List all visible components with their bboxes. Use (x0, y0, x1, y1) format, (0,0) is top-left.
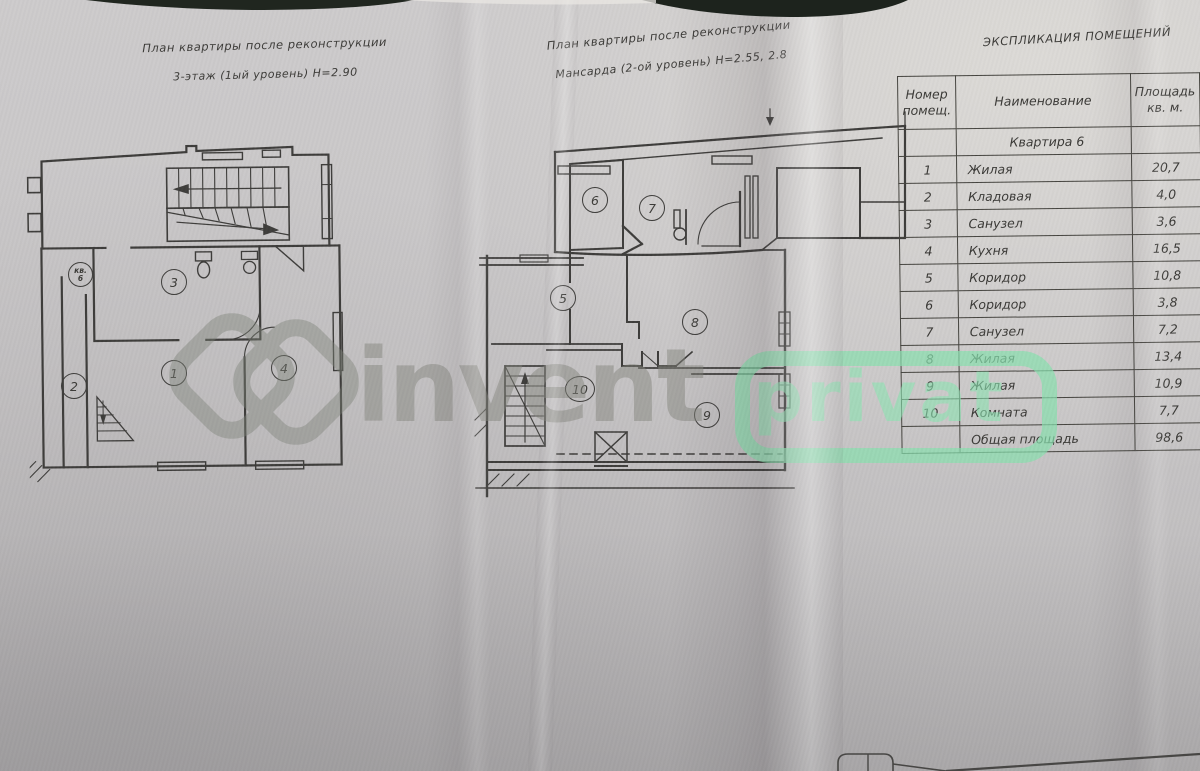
table-header-row: Номер помещ. Наименование Площадь кв. м. (898, 73, 1200, 130)
table-row: 3 Санузел 3,6 (899, 207, 1200, 238)
room-area-cell: 7,7 (1134, 396, 1200, 424)
left-plan-title-line1: План квартиры после реконструкции (100, 36, 430, 56)
empty-cell (898, 129, 956, 157)
empty-cell (1131, 126, 1200, 154)
room-name-cell: Кухня (957, 235, 1132, 264)
room-name-cell: Коридор (958, 262, 1133, 291)
left-plan-walls (26, 144, 344, 481)
left-floor-plan-drawing (26, 114, 360, 497)
room-number: 8 (691, 315, 699, 330)
header-room-name: Наименование (955, 74, 1130, 129)
left-plan-title-line2: 3-этаж (1ый уровень) Н=2.90 (100, 64, 430, 84)
explication-title: ЭКСПЛИКАЦИЯ ПОМЕЩЕНИЙ (952, 23, 1200, 51)
explication-table: Номер помещ. Наименование Площадь кв. м.… (897, 72, 1200, 454)
room-number-cell: 1 (898, 156, 956, 184)
apartment-number-badge: кв. 6 (68, 262, 93, 287)
table-row: 2 Кладовая 4,0 (899, 180, 1200, 211)
total-row: Общая площадь 98,6 (902, 423, 1200, 454)
room-circle-9: 9 (694, 402, 720, 428)
room-number: 6 (591, 193, 599, 208)
room-circle-6: 6 (582, 187, 608, 213)
room-name-cell: Коридор (958, 289, 1133, 318)
table-row: 1 Жилая 20,7 (898, 153, 1200, 184)
scanned-floorplan-page: План квартиры после реконструкции 3-этаж… (0, 0, 1200, 771)
room-number-cell: 2 (899, 183, 957, 211)
room-number-cell: 5 (900, 264, 958, 292)
apartment-group-label: Квартира 6 (956, 127, 1131, 156)
paper-shading (0, 531, 1200, 771)
room-number: 5 (559, 291, 567, 306)
toilet-icon (674, 210, 686, 240)
room-name-cell: Жилая (959, 370, 1134, 399)
sink-icon (241, 251, 257, 273)
room-number-cell: 3 (899, 210, 957, 238)
table-row: 5 Коридор 10,8 (900, 261, 1200, 292)
room-circle-8: 8 (682, 309, 708, 335)
toilet-icon (195, 252, 211, 278)
room-area-cell: 13,4 (1133, 342, 1200, 370)
room-name-cell: Жилая (958, 343, 1133, 372)
right-plan-walls (475, 109, 905, 496)
room-circle-10: 10 (565, 376, 595, 402)
corner-shelf-icon (275, 246, 303, 271)
room-name-cell: Комната (959, 397, 1134, 426)
table-row: 10 Комната 7,7 (901, 396, 1200, 427)
total-area-cell: 98,6 (1134, 423, 1200, 451)
room-circle-1: 1 (161, 360, 187, 386)
room-area-cell: 3,6 (1132, 207, 1200, 235)
room-name-cell: Санузел (957, 208, 1132, 237)
room-number-cell: 4 (899, 237, 957, 265)
room-number-cell: 8 (901, 345, 959, 373)
room-circle-3: 3 (161, 269, 187, 295)
room-number: 1 (170, 366, 178, 381)
room-number-cell: 9 (901, 372, 959, 400)
room-name-cell: Жилая (956, 154, 1131, 183)
room-area-cell: 16,5 (1132, 234, 1200, 262)
room-number: 3 (170, 275, 178, 290)
room-number: 10 (572, 382, 588, 397)
table-row: 8 Жилая 13,4 (901, 342, 1200, 373)
room-area-cell: 20,7 (1131, 153, 1200, 181)
header-room-area: Площадь кв. м. (1130, 73, 1200, 127)
room-number-cell: 10 (901, 399, 959, 427)
header-room-number: Номер помещ. (898, 76, 956, 130)
room-circle-7: 7 (639, 195, 665, 221)
room-circle-2: 2 (61, 373, 87, 399)
total-label-cell: Общая площадь (959, 424, 1134, 453)
room-name-cell: Кладовая (957, 181, 1132, 210)
shaft-icon (595, 432, 627, 466)
stairs-upper-flight (167, 167, 289, 208)
stairs-winder-icon (97, 397, 133, 441)
left-plan-title: План квартиры после реконструкции 3-этаж… (100, 36, 431, 84)
room-area-cell: 10,9 (1134, 369, 1200, 397)
room-number: 7 (648, 201, 656, 216)
apartment-group-row: Квартира 6 (898, 126, 1200, 157)
room-name-cell: Санузел (958, 316, 1133, 345)
table-row: 4 Кухня 16,5 (899, 234, 1200, 265)
room-number-cell: 7 (900, 318, 958, 346)
right-plan-title-line2: Мансарда (2-ой уровень) Н=2.55, 2.8 (536, 47, 806, 81)
room-number: 9 (703, 408, 711, 423)
right-plan-title: План квартиры после реконструкции Мансар… (534, 18, 806, 81)
room-circle-5: 5 (550, 285, 576, 311)
stairs-icon (505, 366, 545, 446)
room-number: 4 (280, 361, 288, 376)
room-area-cell: 7,2 (1133, 315, 1200, 343)
room-circle-4: 4 (271, 355, 297, 381)
room-area-cell: 3,8 (1133, 288, 1200, 316)
empty-cell (902, 426, 960, 454)
room-number: 2 (70, 379, 78, 394)
table-row: 6 Коридор 3,8 (900, 288, 1200, 319)
table-row: 9 Жилая 10,9 (901, 369, 1200, 400)
room-number-cell: 6 (900, 291, 958, 319)
right-plan-title-line1: План квартиры после реконструкции (534, 18, 804, 53)
room-area-cell: 4,0 (1131, 180, 1200, 208)
stairs-lower-flight (167, 207, 289, 241)
table-row: 7 Санузел 7,2 (900, 315, 1200, 346)
room-area-cell: 10,8 (1132, 261, 1200, 289)
